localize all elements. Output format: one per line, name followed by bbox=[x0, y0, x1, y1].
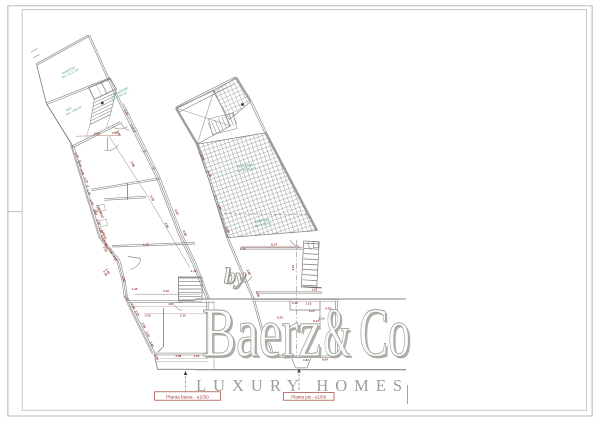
svg-text:1.40: 1.40 bbox=[191, 269, 197, 273]
svg-text:4.04: 4.04 bbox=[94, 131, 101, 136]
svg-text:Co: Co bbox=[359, 295, 410, 372]
svg-text:Planta baixa - e1/50: Planta baixa - e1/50 bbox=[166, 394, 209, 400]
svg-text:5.19: 5.19 bbox=[163, 289, 169, 293]
svg-text:5.75: 5.75 bbox=[143, 243, 149, 247]
svg-text:&: & bbox=[324, 295, 351, 372]
svg-text:2.98: 2.98 bbox=[176, 354, 182, 358]
svg-text:by: by bbox=[224, 264, 247, 289]
svg-text:3.10: 3.10 bbox=[145, 313, 151, 317]
svg-text:Planta pis - e1/50: Planta pis - e1/50 bbox=[291, 395, 327, 400]
svg-text:8.14: 8.14 bbox=[271, 243, 277, 247]
svg-text:Baerz: Baerz bbox=[202, 295, 321, 372]
svg-text:3.97: 3.97 bbox=[291, 264, 295, 270]
svg-text:1.02: 1.02 bbox=[312, 288, 318, 292]
svg-text:4.60: 4.60 bbox=[168, 302, 174, 306]
svg-text:1.20: 1.20 bbox=[194, 354, 200, 358]
svg-text:5.10: 5.10 bbox=[180, 313, 186, 317]
svg-text:1.45: 1.45 bbox=[132, 287, 138, 291]
